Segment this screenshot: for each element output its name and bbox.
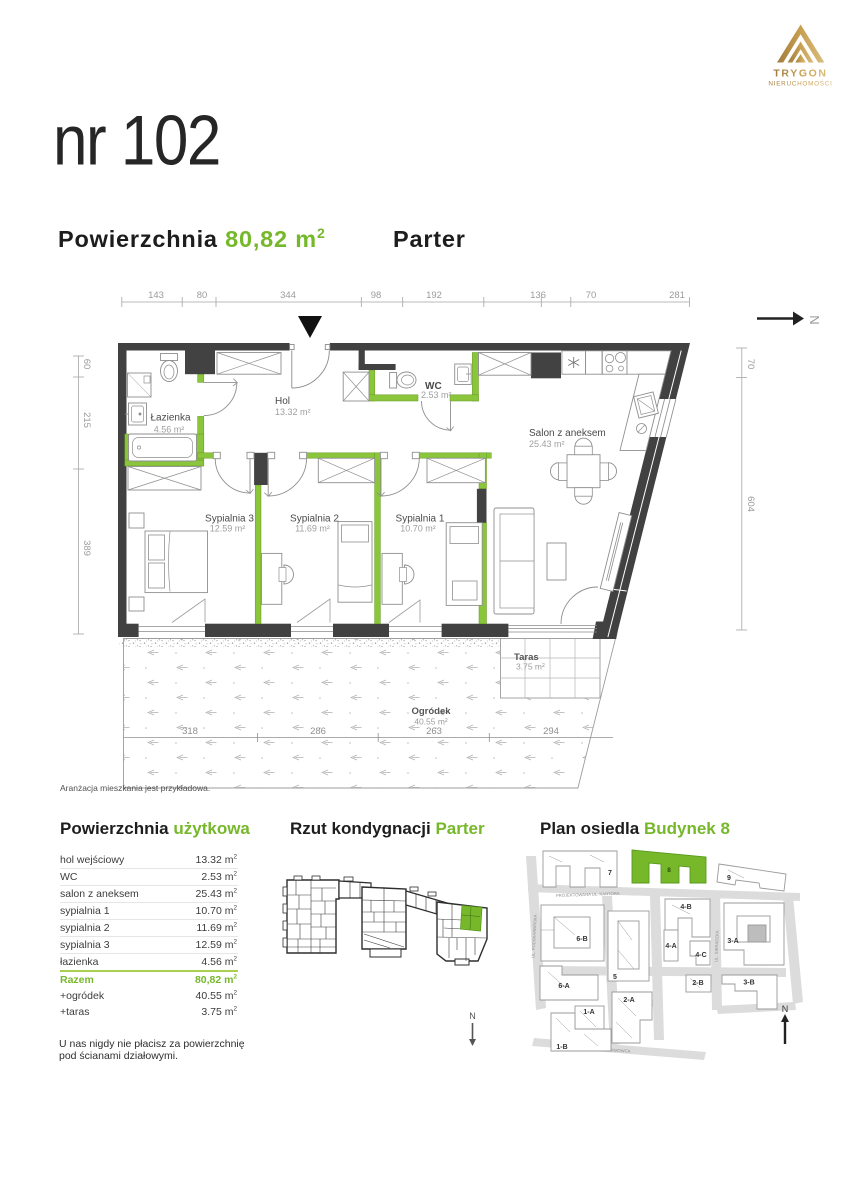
svg-text:5: 5: [613, 974, 617, 981]
svg-text:Salon z aneksem: Salon z aneksem: [529, 428, 606, 439]
svg-text:6-B: 6-B: [576, 936, 587, 943]
svg-text:4-A: 4-A: [665, 943, 676, 950]
svg-text:192: 192: [426, 290, 442, 301]
svg-text:3-B: 3-B: [743, 980, 754, 987]
svg-text:143: 143: [148, 290, 164, 301]
svg-text:8: 8: [667, 867, 671, 874]
svg-text:40.55 m²: 40.55 m²: [414, 717, 448, 727]
svg-text:4.56 m²: 4.56 m²: [154, 425, 185, 435]
svg-text:281: 281: [669, 290, 685, 301]
svg-text:6-A: 6-A: [558, 983, 569, 990]
svg-text:136: 136: [530, 290, 546, 301]
svg-text:70: 70: [745, 359, 756, 370]
svg-text:604: 604: [745, 496, 756, 512]
svg-text:2-A: 2-A: [623, 997, 634, 1004]
svg-text:4-B: 4-B: [680, 904, 691, 911]
svg-text:9: 9: [727, 875, 731, 882]
svg-text:Ogródek: Ogródek: [411, 706, 451, 717]
svg-text:N: N: [782, 1004, 789, 1014]
svg-text:263: 263: [426, 726, 442, 737]
svg-text:389: 389: [81, 540, 92, 556]
svg-text:12.59 m²: 12.59 m²: [210, 524, 246, 534]
svg-text:7: 7: [608, 870, 612, 877]
svg-text:Hol: Hol: [275, 396, 290, 407]
svg-text:4-C: 4-C: [695, 952, 706, 959]
svg-text:N: N: [807, 315, 822, 324]
svg-text:10.70 m²: 10.70 m²: [400, 524, 436, 534]
svg-text:215: 215: [81, 412, 92, 428]
svg-text:294: 294: [543, 726, 559, 737]
svg-text:80: 80: [197, 290, 208, 301]
svg-text:Łazienka: Łazienka: [150, 413, 190, 424]
svg-text:2.53 m²: 2.53 m²: [421, 390, 452, 400]
svg-text:318: 318: [182, 726, 198, 737]
svg-text:344: 344: [280, 290, 296, 301]
svg-text:11.69 m²: 11.69 m²: [295, 524, 330, 534]
svg-text:2-B: 2-B: [692, 980, 703, 987]
svg-text:NIERUCHOMOŚCI: NIERUCHOMOŚCI: [768, 79, 832, 88]
svg-text:60: 60: [81, 359, 92, 370]
svg-text:13.32 m²: 13.32 m²: [275, 407, 311, 417]
svg-text:3-A: 3-A: [727, 938, 738, 945]
svg-text:98: 98: [371, 290, 382, 301]
svg-text:286: 286: [310, 726, 326, 737]
svg-text:N: N: [469, 1011, 476, 1021]
svg-text:1-B: 1-B: [556, 1044, 567, 1051]
svg-text:Aranżacja mieszkania jest przy: Aranżacja mieszkania jest przykładowa.: [60, 783, 210, 793]
svg-text:3.75 m²: 3.75 m²: [516, 662, 545, 672]
svg-text:70: 70: [586, 290, 597, 301]
svg-text:TRYGON: TRYGON: [773, 68, 827, 80]
svg-text:1-A: 1-A: [583, 1009, 594, 1016]
svg-text:25.43 m²: 25.43 m²: [529, 439, 565, 449]
